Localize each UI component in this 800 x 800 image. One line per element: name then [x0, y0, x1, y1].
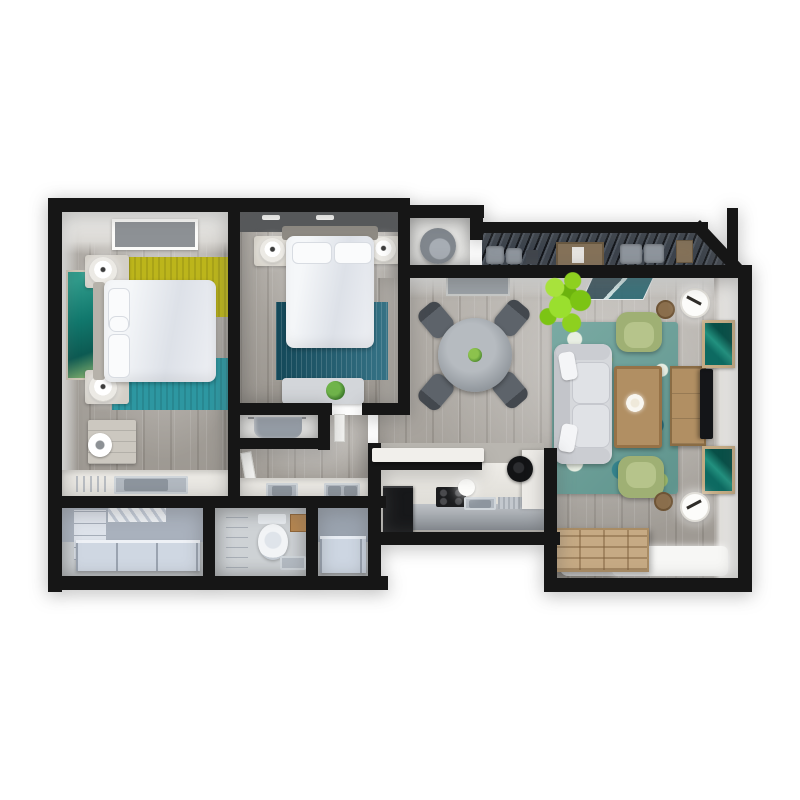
large-plant: [538, 272, 594, 334]
wall-closet-bottom: [238, 438, 330, 449]
wall-balcony-top: [478, 222, 708, 233]
walls-layer: [0, 0, 800, 800]
wall-bottom-rooms-top: [48, 496, 386, 508]
floor-plan-render: [0, 0, 800, 800]
wall-living-left: [544, 448, 557, 592]
wall-living-bottom: [544, 578, 752, 592]
wall-bottom-divider-a: [203, 500, 215, 584]
wall-outer-bottom-left: [48, 576, 388, 590]
wall-outer-left: [48, 198, 62, 592]
wall-bedroom-divider: [228, 198, 240, 508]
wall-bedroom2-bottom: [362, 403, 410, 415]
wall-bedroom2-right: [398, 198, 410, 415]
wall-kitchen-bottom: [368, 532, 560, 545]
wall-outer-right: [738, 265, 752, 592]
wall-bottom-divider-b: [306, 500, 318, 584]
wall-bedroom2-bottom: [228, 403, 332, 415]
bar-counter: [372, 448, 484, 462]
